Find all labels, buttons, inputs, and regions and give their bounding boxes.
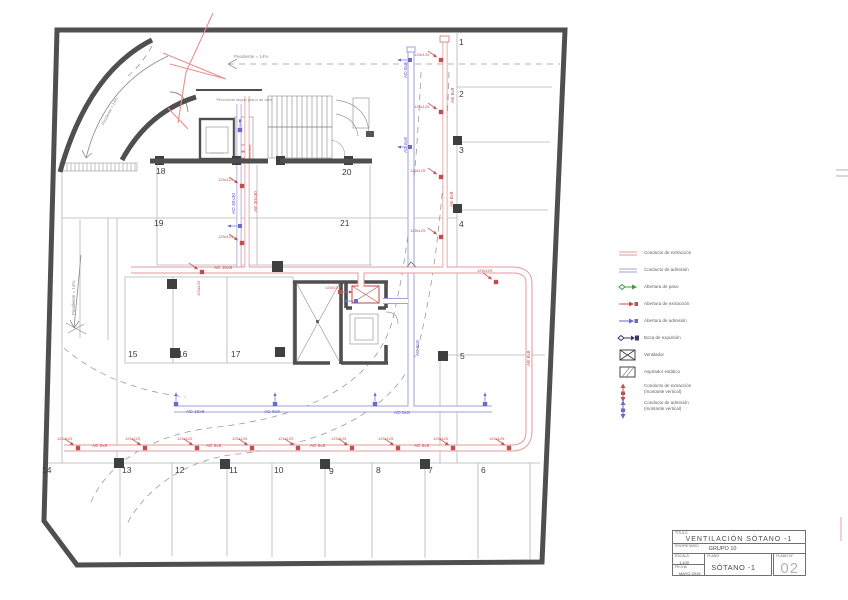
sheet-number: 02 <box>774 560 805 577</box>
plano-value: SÓTANO -1 <box>711 563 771 572</box>
parking-space-number: 6 <box>481 466 486 475</box>
annotation: Pendiente = 14% <box>234 55 268 60</box>
hatched-wall <box>60 163 137 171</box>
legend-item: Abertura de admisión <box>616 314 706 328</box>
legend-item: Ventilador <box>616 348 706 362</box>
legend-label: Conducto de extracción(montante vertical… <box>644 383 691 394</box>
legend-label: Ventilador <box>644 352 664 358</box>
parking-space-number: 2 <box>459 90 464 99</box>
parking-space-number: 18 <box>156 167 165 176</box>
duct-size-label: 125x125 <box>197 281 201 296</box>
ventilador-icon <box>616 348 640 362</box>
parking-space-number: 16 <box>178 350 187 359</box>
numero-label: PLANO Nº <box>774 554 805 559</box>
legend-item: Abertura de extracción <box>616 297 706 311</box>
parking-space-number: 10 <box>274 466 283 475</box>
owner-value: GRUPO 10 <box>709 546 737 553</box>
duct-size-label: AE 8x8 <box>206 445 221 450</box>
drawing-title: VENTILACIÓN SÓTANO -1 <box>673 536 805 543</box>
duct-size-label: 125x125 <box>278 437 293 441</box>
drawing-sheet: 123456789101112131415161718192021AE 8x8A… <box>0 0 848 600</box>
legend-label: Conducto de extracción <box>644 250 691 256</box>
duct-red-icon <box>616 246 640 260</box>
duct-size-label: 125x125 <box>433 437 448 441</box>
duct-size-label: AD 8x8 <box>405 62 410 78</box>
legend-item: Abertura de paso <box>616 280 706 294</box>
duct-size-label: AE 10x8 <box>214 267 232 272</box>
duct-size-label: 125x125 <box>325 286 340 290</box>
parking-space-number: 12 <box>175 466 184 475</box>
parking-space-number: 19 <box>154 219 163 228</box>
duct-size-label: 125x125 <box>218 235 233 239</box>
duct-size-label: AD 8x8 <box>394 412 410 417</box>
duct-size-label: 125x125 <box>414 53 429 57</box>
duct-size-label: AD 8x8 <box>405 137 410 153</box>
duct-blue-icon <box>616 263 640 277</box>
parking-space-number: 8 <box>376 466 381 475</box>
ab-red-icon <box>616 297 640 311</box>
duct-size-label: 125x125 <box>331 437 346 441</box>
duct-size-label: 125x125 <box>232 437 247 441</box>
legend-label: Boca de expulsión <box>644 335 681 341</box>
duct-size-label: AD 8x8 <box>417 340 422 356</box>
legend-item: Conducto de admisión(montante vertical) <box>616 399 706 413</box>
fold-marks <box>836 170 848 541</box>
stair-core <box>268 96 374 158</box>
legend-item: Boca de expulsión <box>616 331 706 345</box>
parking-space-number: 11 <box>229 466 238 475</box>
propietario-label: PROPIETARIO <box>673 544 699 553</box>
escala-label: ESCALA <box>673 554 704 559</box>
parking-space-number: 3 <box>459 146 464 155</box>
fecha-label: FECHA <box>673 565 704 570</box>
duct-size-label: 125x125 <box>414 105 429 109</box>
legend-label: Aspirador estático <box>644 369 680 375</box>
legend-label: Conducto de admisión(montante vertical) <box>644 400 689 411</box>
duct-size-label: AE 8x8 <box>452 88 457 103</box>
parking-space-number: 9 <box>329 467 334 476</box>
elevator-top <box>200 119 234 159</box>
duct-size-label: AE 8x8 <box>310 445 325 450</box>
duct-size-label: AD 10x8 <box>186 411 204 416</box>
title-row: TÍTULO VENTILACIÓN SÓTANO -1 <box>672 530 806 544</box>
sheet-number-cell: PLANO Nº 02 <box>773 553 806 576</box>
aspirador-icon <box>616 365 640 379</box>
legend-item: Conducto de extracción(montante vertical… <box>616 382 706 396</box>
date-cell: FECHA MAYO 2019 <box>672 564 705 576</box>
duct-size-label: 125x125 <box>125 437 140 441</box>
parking-space-number: 20 <box>342 168 351 177</box>
floor-plan <box>0 0 848 600</box>
duct-size-label: 125x125 <box>477 269 492 273</box>
parking-space-number: 17 <box>231 350 240 359</box>
duct-size-label: 125x125 <box>57 437 72 441</box>
duct-size-label: 125x125 <box>410 229 425 233</box>
legend-label: Abertura de paso <box>644 284 679 290</box>
parking-space-number: 7 <box>428 466 433 475</box>
duct-size-label: AE 8x8 <box>92 445 107 450</box>
legend-item: Aspirador estático <box>616 365 706 379</box>
legend: Conducto de extracciónConducto de admisi… <box>616 246 706 416</box>
mont-red-icon <box>616 382 640 396</box>
legend-item: Conducto de extracción <box>616 246 706 260</box>
central-core <box>293 282 398 364</box>
fecha-value: MAYO 2019 <box>679 571 704 576</box>
plan-name-cell: PLANO SÓTANO -1 <box>704 553 772 576</box>
parking-grid <box>46 33 552 559</box>
annotation: *Recorrido según plano de obra <box>216 98 272 102</box>
scale-date-column: ESCALA 1:100 FECHA MAYO 2019 <box>672 553 705 576</box>
boca-icon <box>616 331 640 345</box>
duct-size-label: 125x125 <box>177 437 192 441</box>
paso-icon <box>616 280 640 294</box>
duct-size-label: AD 8x8 <box>264 411 280 416</box>
legend-label: Conducto de admisión <box>644 267 689 273</box>
parking-space-number: 1 <box>459 38 464 47</box>
legend-item: Conducto de admisión <box>616 263 706 277</box>
parking-space-number: 15 <box>128 350 137 359</box>
duct-size-label: 125x125 <box>218 178 233 182</box>
ab-blue-icon <box>616 314 640 328</box>
parking-space-number: 5 <box>460 352 465 361</box>
duct-size-label: AE 30x30 <box>255 191 260 212</box>
legend-label: Abertura de extracción <box>644 301 689 307</box>
duct-size-label: AE 8x8 <box>451 192 456 207</box>
plano-label: PLANO <box>705 554 771 559</box>
duct-size-label: 125x125 <box>410 169 425 173</box>
duct-size-label: AE 8x8 <box>414 445 429 450</box>
parking-space-number: 4 <box>459 220 464 229</box>
annotation: Pendiente = 14% <box>72 281 77 315</box>
duct-size-label: AE 8x8 <box>528 351 533 366</box>
parking-space-number: 21 <box>340 219 349 228</box>
duct-size-label: AD 30x30 <box>233 193 238 214</box>
duct-size-label: 125x125 <box>489 437 504 441</box>
mont-blue-icon <box>616 399 640 413</box>
legend-label: Abertura de admisión <box>644 318 687 324</box>
title-block: TÍTULO VENTILACIÓN SÓTANO -1 PROPIETARIO… <box>672 530 840 576</box>
parking-space-number: 13 <box>122 466 131 475</box>
duct-size-label: 125x125 <box>378 437 393 441</box>
parking-space-number: 14 <box>42 466 51 475</box>
ramp <box>66 56 188 334</box>
